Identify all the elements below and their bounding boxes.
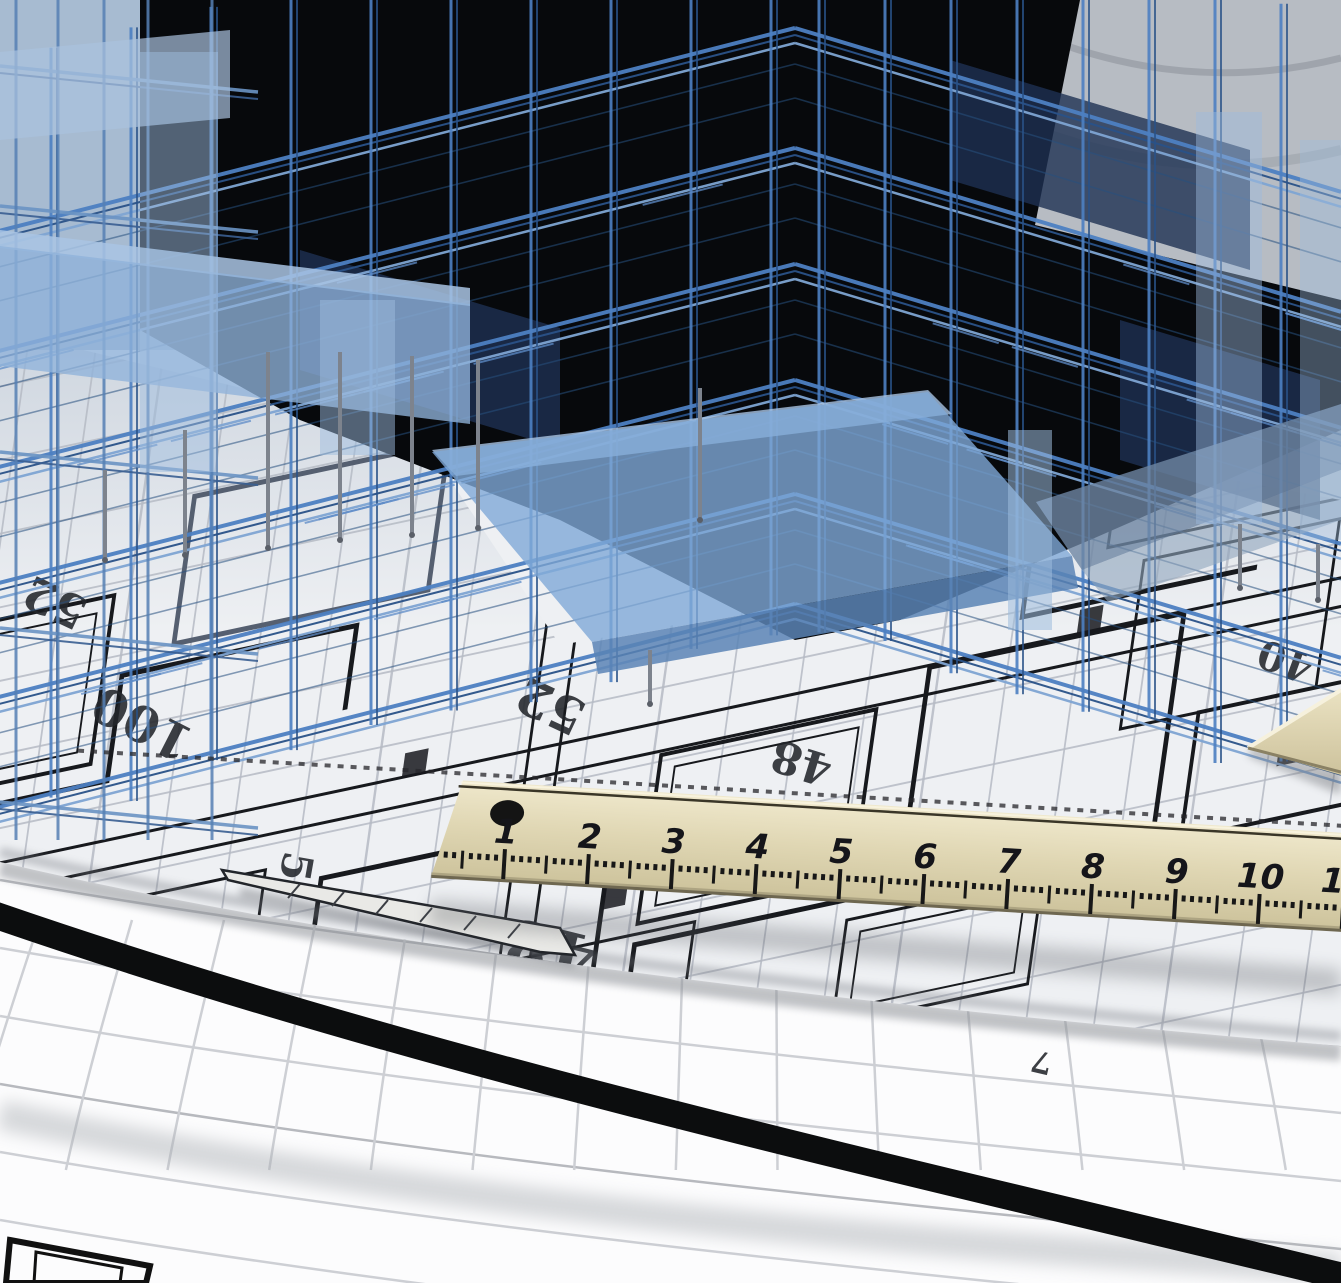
ruler-tick-dot xyxy=(863,876,867,882)
ruler-tick-dot xyxy=(519,856,523,862)
ruler-number: 2 xyxy=(577,816,603,857)
ruler-tick-dot xyxy=(854,876,858,882)
support-pin-foot xyxy=(182,552,188,558)
support-pin-foot xyxy=(1315,597,1321,603)
support-pin-foot xyxy=(697,517,703,523)
ruler-tick-dot xyxy=(1123,892,1127,898)
ruler-tick-dot xyxy=(1056,888,1060,894)
ruler-tick-dot xyxy=(888,878,892,884)
ruler-tick-dot xyxy=(594,861,598,867)
ruler-tick-dot xyxy=(477,854,481,860)
ruler-tick-dot xyxy=(1198,896,1202,902)
ruler-tick-dot xyxy=(1064,888,1068,894)
ruler-tick-dot xyxy=(611,862,615,868)
ruler-tick-dot xyxy=(1148,893,1152,899)
ruler-tick-dot xyxy=(1282,901,1286,907)
ruler-tick-dot xyxy=(1265,900,1269,906)
ruler-tick-dot xyxy=(1072,889,1076,895)
ruler-tick-dot xyxy=(1156,894,1160,900)
ruler-tick-dot xyxy=(561,859,565,865)
support-pin-foot xyxy=(1237,585,1243,591)
ruler-tick-dot xyxy=(846,875,850,881)
ruler-tick-dot xyxy=(729,868,733,874)
ruler-number: 11 xyxy=(1320,861,1341,904)
building-slab-column xyxy=(140,52,218,472)
ruler-tick-dot xyxy=(930,880,934,886)
ruler-tick-dot xyxy=(737,869,741,875)
ruler-tick-dot xyxy=(871,877,875,883)
ruler-tick-dot xyxy=(444,852,448,858)
support-pin-foot xyxy=(647,701,653,707)
ruler-tick-dot xyxy=(1223,898,1227,904)
building-slab-column xyxy=(1300,140,1341,540)
ruler-number: 7 xyxy=(996,841,1022,882)
ruler-tick-dot xyxy=(653,864,657,870)
ruler-tick-dot xyxy=(1274,901,1278,907)
ruler-tick-dot xyxy=(1240,899,1244,905)
ruler-tick-dot xyxy=(1307,903,1311,909)
ruler-tick-dot xyxy=(469,853,473,859)
ruler-tick-dot xyxy=(662,864,666,870)
ruler-tick-dot xyxy=(687,866,691,872)
ruler-number: 4 xyxy=(744,826,771,867)
ruler-tick-dot xyxy=(762,870,766,876)
ruler-tick-dot xyxy=(511,856,515,862)
ruler-tick-dot xyxy=(1022,886,1026,892)
ruler-tick-dot xyxy=(804,873,808,879)
ruler-tick-dot xyxy=(896,878,900,884)
ruler-tick-dot xyxy=(1290,902,1294,908)
ruler-tick-dot xyxy=(1232,898,1236,904)
ruler-tick-dot xyxy=(536,857,540,863)
ruler-tick-dot xyxy=(813,873,817,879)
ruler-tick-dot xyxy=(980,883,984,889)
ruler-tick-dot xyxy=(494,855,498,861)
support-pin-foot xyxy=(409,532,415,538)
ruler-tick-dot xyxy=(787,872,791,878)
ruler-tick-dot xyxy=(1098,890,1102,896)
ruler-tick-dot xyxy=(1324,904,1328,910)
ruler-number: 5 xyxy=(828,831,854,872)
building-slab-column xyxy=(1008,430,1052,630)
ruler-tick-dot xyxy=(947,881,951,887)
ruler-tick-dot xyxy=(1181,895,1185,901)
ruler-tick-dot xyxy=(905,879,909,885)
ruler-tick-dot xyxy=(645,863,649,869)
ruler-tick-dot xyxy=(829,874,833,880)
ruler-tick-dot xyxy=(1249,899,1253,905)
ruler-tick-dot xyxy=(989,884,993,890)
ruler-tick-dot xyxy=(1081,889,1085,895)
blueprint-scene: 52100524840485252540 7 1234567891011 xyxy=(0,0,1341,1283)
ruler-number: 8 xyxy=(1080,846,1106,887)
ruler-tick-dot xyxy=(821,874,825,880)
blueprint-illustration: 52100524840485252540 7 1234567891011 xyxy=(0,0,1341,1283)
ruler-number: 10 xyxy=(1236,856,1286,899)
ruler-tick-dot xyxy=(720,868,724,874)
ruler-tick-dot xyxy=(578,860,582,866)
ruler-tick-dot xyxy=(779,871,783,877)
ruler-tick-dot xyxy=(485,854,489,860)
ruler-tick-dot xyxy=(955,882,959,888)
ruler-number: 6 xyxy=(912,836,938,877)
ruler-tick-dot xyxy=(771,871,775,877)
ruler-tick-dot xyxy=(997,884,1001,890)
ruler-number: 1 xyxy=(493,812,519,853)
support-pin-foot xyxy=(102,557,108,563)
ruler-tick-dot xyxy=(678,865,682,871)
ruler-tick-dot xyxy=(452,852,456,858)
ruler-tick-dot xyxy=(913,879,917,885)
ruler-tick-dot xyxy=(938,881,942,887)
ruler-tick-dot xyxy=(569,859,573,865)
ruler-tick-dot xyxy=(1190,896,1194,902)
ruler-tick-dot xyxy=(1140,893,1144,899)
ruler-tick-dot xyxy=(1106,891,1110,897)
ruler-tick-dot xyxy=(972,883,976,889)
building-slab-column xyxy=(320,300,395,455)
ruler-tick-dot xyxy=(636,863,640,869)
ruler-tick-dot xyxy=(1165,894,1169,900)
ruler-tick-dot xyxy=(1039,887,1043,893)
ruler-tick-dot xyxy=(603,861,607,867)
ruler-tick-dot xyxy=(745,869,749,875)
support-pin-foot xyxy=(265,545,271,551)
building-slab-column xyxy=(1196,112,1262,524)
ruler-tick-dot xyxy=(1114,891,1118,897)
ruler-tick-dot xyxy=(695,866,699,872)
ruler-number: 3 xyxy=(661,821,687,862)
ruler-tick-dot xyxy=(1316,903,1320,909)
ruler-tick-dot xyxy=(703,867,707,873)
support-pin-foot xyxy=(475,525,481,531)
ruler-tick-dot xyxy=(1207,897,1211,903)
support-pin-foot xyxy=(337,537,343,543)
ruler-tick-dot xyxy=(1332,904,1336,910)
ruler-tick-dot xyxy=(553,858,557,864)
ruler-tick-dot xyxy=(1014,885,1018,891)
ruler-tick-dot xyxy=(527,857,531,863)
ruler-number: 9 xyxy=(1164,851,1190,892)
ruler-tick-dot xyxy=(620,862,624,868)
ruler-tick-dot xyxy=(1031,886,1035,892)
